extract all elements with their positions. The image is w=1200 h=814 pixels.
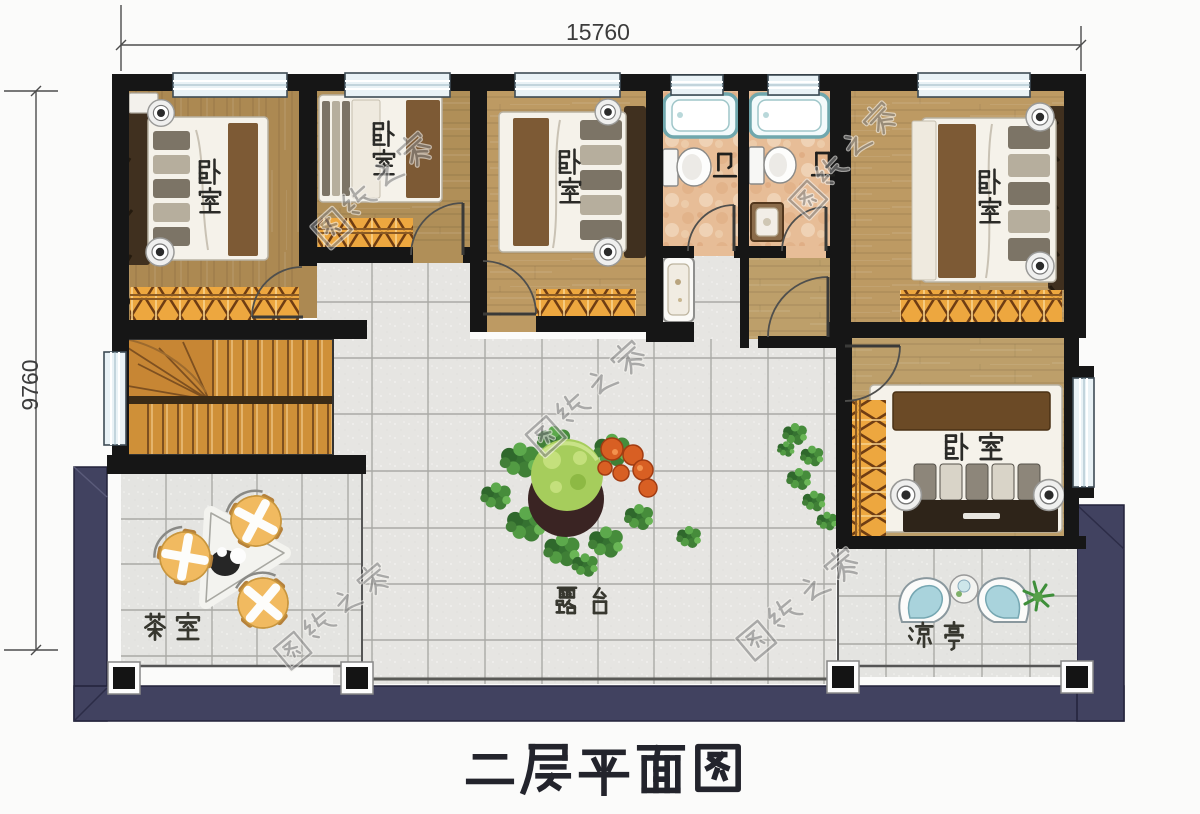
svg-text:9760: 9760 <box>17 359 43 410</box>
svg-text:15760: 15760 <box>566 19 630 45</box>
